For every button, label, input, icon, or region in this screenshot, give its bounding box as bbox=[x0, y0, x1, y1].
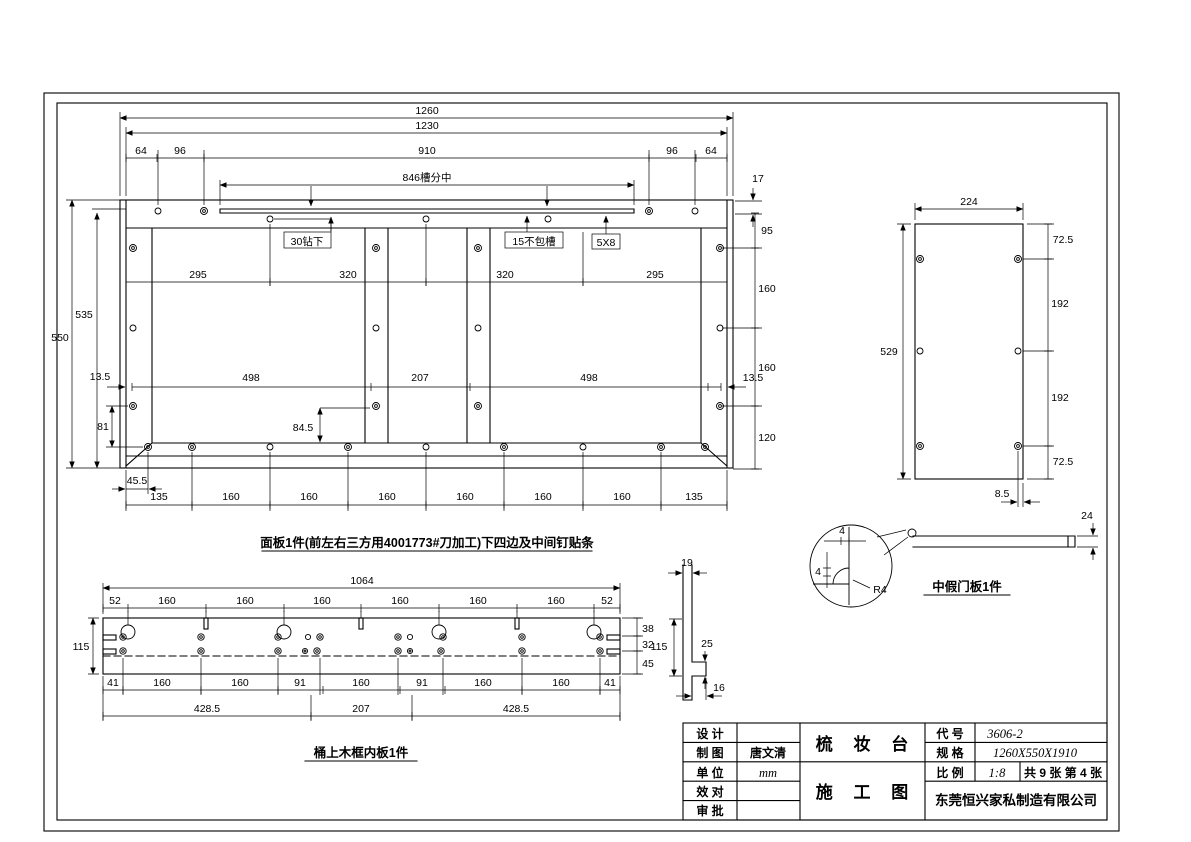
panel-outline bbox=[120, 200, 733, 468]
dim-428-5-left: 428.5 bbox=[194, 703, 220, 715]
dim-160-c3: 160 bbox=[352, 677, 370, 689]
note-30-drill: 30钻下 bbox=[291, 235, 324, 248]
dim-498-right: 498 bbox=[580, 372, 598, 384]
dim-8-5: 8.5 bbox=[995, 488, 1010, 500]
dim-64-right: 64 bbox=[705, 145, 717, 157]
dim-160-t2: 160 bbox=[236, 595, 254, 607]
dim-64-left: 64 bbox=[135, 145, 147, 157]
dim-45-5: 45.5 bbox=[127, 475, 148, 487]
code-value: 3606-2 bbox=[986, 727, 1022, 741]
drawing-sheet: 1260 1230 64 96 910 96 64 846槽分中 17 30钻下… bbox=[0, 0, 1191, 842]
panel-caption: 面板1件(前左右三方用4001773#刀加工)下四边及中间钉贴条 bbox=[260, 535, 594, 550]
dim-96-right: 96 bbox=[666, 145, 678, 157]
dim-115: 115 bbox=[73, 641, 90, 653]
strip-outline bbox=[103, 618, 620, 674]
note-5x8: 5X8 bbox=[597, 237, 616, 249]
dim-535: 535 bbox=[75, 309, 93, 321]
dim-41-left: 41 bbox=[107, 677, 119, 689]
dim-910: 910 bbox=[418, 145, 436, 157]
field-design-label: 设 计 bbox=[696, 726, 723, 741]
dim-95: 95 bbox=[761, 225, 773, 237]
dim-160-t5: 160 bbox=[469, 595, 487, 607]
dim-16: 16 bbox=[713, 682, 725, 694]
dim-160-b2: 160 bbox=[300, 491, 318, 503]
code-label: 代 号 bbox=[935, 726, 963, 741]
product-name: 梳 妆 台 bbox=[816, 734, 916, 754]
panel-dimension-texts: 1260 1230 64 96 910 96 64 846槽分中 17 30钻下… bbox=[51, 105, 776, 551]
dim-192-bottom: 192 bbox=[1051, 392, 1069, 404]
sheet-count: 共 9 张 第 4 张 bbox=[1024, 765, 1103, 780]
doc-type: 施 工 图 bbox=[816, 782, 916, 802]
dim-160-c2: 160 bbox=[231, 677, 249, 689]
strip-profile-view: 19 115 25 16 bbox=[651, 557, 725, 700]
field-approve-label: 审 批 bbox=[696, 803, 723, 818]
dim-115-profile: 115 bbox=[651, 641, 668, 653]
dim-295-right: 295 bbox=[646, 269, 664, 281]
profile-dimension-lines bbox=[668, 573, 722, 700]
dim-498-left: 498 bbox=[242, 372, 260, 384]
field-unit-label: 单 位 bbox=[696, 765, 723, 780]
door-caption: 中假门板1件 bbox=[932, 579, 1002, 594]
dim-160-b3: 160 bbox=[378, 491, 396, 503]
dim-295-left: 295 bbox=[189, 269, 207, 281]
panel-holes bbox=[130, 208, 724, 451]
dim-207: 207 bbox=[411, 372, 429, 384]
door-drawing: 224 529 72.5 192 192 72.5 8.5 24 4 4 R4 … bbox=[810, 196, 1098, 607]
sheet-border bbox=[44, 93, 1119, 831]
dim-192-top: 192 bbox=[1051, 298, 1069, 310]
dim-41-right: 41 bbox=[604, 677, 616, 689]
dim-135-b1: 135 bbox=[150, 491, 168, 503]
dim-207-b: 207 bbox=[352, 703, 370, 715]
dim-72-5-bottom: 72.5 bbox=[1053, 456, 1074, 468]
dim-84-5: 84.5 bbox=[293, 422, 314, 434]
dim-72-5-top: 72.5 bbox=[1053, 234, 1074, 246]
dim-4-horizontal: 4 bbox=[839, 525, 845, 537]
field-draft-label: 制 图 bbox=[696, 745, 723, 760]
dim-160-c4: 160 bbox=[474, 677, 492, 689]
cad-canvas: 1260 1230 64 96 910 96 64 846槽分中 17 30钻下… bbox=[0, 0, 1191, 842]
door-holes bbox=[917, 256, 1022, 450]
dim-17: 17 bbox=[752, 173, 764, 185]
dim-1064: 1064 bbox=[350, 575, 374, 587]
title-block: 设 计 制 图 唐文清 单 位 mm 效 对 审 批 梳 妆 台 施 工 图 代… bbox=[683, 723, 1107, 820]
field-draft-value: 唐文清 bbox=[750, 745, 786, 760]
dim-91-left: 91 bbox=[294, 677, 306, 689]
company-name: 东莞恒兴家私制造有限公司 bbox=[935, 792, 1097, 808]
dim-r4: R4 bbox=[873, 584, 887, 596]
dim-160-t6: 160 bbox=[547, 595, 565, 607]
dim-160-t1: 160 bbox=[158, 595, 176, 607]
dim-320-right: 320 bbox=[496, 269, 514, 281]
profile-outline bbox=[683, 565, 706, 700]
dim-160-b5: 160 bbox=[534, 491, 552, 503]
dim-13-5-left: 13.5 bbox=[90, 371, 111, 383]
dim-160-b6: 160 bbox=[613, 491, 631, 503]
dim-550: 550 bbox=[51, 332, 69, 344]
field-unit-value: mm bbox=[759, 766, 777, 780]
scale-label: 比 例 bbox=[936, 765, 963, 780]
dim-160-t4: 160 bbox=[391, 595, 409, 607]
field-check-label: 效 对 bbox=[696, 784, 723, 799]
dim-25: 25 bbox=[701, 638, 713, 650]
dim-160-c1: 160 bbox=[153, 677, 171, 689]
dim-224: 224 bbox=[960, 196, 978, 208]
door-dimension-lines bbox=[903, 209, 1093, 560]
door-outline bbox=[915, 224, 1023, 479]
dim-24: 24 bbox=[1081, 510, 1093, 522]
dim-160-r1: 160 bbox=[758, 283, 776, 295]
panel-drawing: 1260 1230 64 96 910 96 64 846槽分中 17 30钻下… bbox=[51, 105, 776, 551]
spec-value: 1260X550X1910 bbox=[993, 746, 1078, 760]
sheet-border-outer bbox=[44, 93, 1119, 831]
dim-38: 38 bbox=[642, 623, 654, 635]
scale-value: 1:8 bbox=[989, 766, 1006, 780]
dim-846-groove: 846槽分中 bbox=[402, 171, 451, 184]
dim-320-left: 320 bbox=[339, 269, 357, 281]
dim-428-5-right: 428.5 bbox=[503, 703, 529, 715]
dim-1230: 1230 bbox=[415, 120, 439, 132]
strip-caption: 桶上木框内板1件 bbox=[313, 745, 409, 760]
dim-96-left: 96 bbox=[174, 145, 186, 157]
dim-19: 19 bbox=[681, 557, 693, 569]
dim-135-b2: 135 bbox=[685, 491, 703, 503]
strip-dimension-lines bbox=[93, 588, 641, 720]
dim-1260: 1260 bbox=[415, 105, 439, 117]
dim-160-t3: 160 bbox=[313, 595, 331, 607]
dim-160-c5: 160 bbox=[552, 677, 570, 689]
strip-drawing: 1064 52 160 160 160 160 160 160 52 115 3… bbox=[73, 557, 725, 761]
dim-120: 120 bbox=[758, 432, 776, 444]
dim-160-r2: 160 bbox=[758, 362, 776, 374]
dim-52-left: 52 bbox=[109, 595, 121, 607]
spec-label: 规 格 bbox=[936, 745, 964, 760]
dim-52-right: 52 bbox=[601, 595, 613, 607]
dim-45: 45 bbox=[642, 658, 654, 670]
dim-529: 529 bbox=[880, 346, 898, 358]
strip-dimension-texts: 1064 52 160 160 160 160 160 160 52 115 3… bbox=[73, 575, 654, 761]
dim-81: 81 bbox=[97, 421, 109, 433]
dim-160-b4: 160 bbox=[456, 491, 474, 503]
note-15-groove: 15不包槽 bbox=[512, 235, 556, 248]
dim-4-vertical: 4 bbox=[815, 566, 821, 578]
dim-91-right: 91 bbox=[416, 677, 428, 689]
dim-160-b1: 160 bbox=[222, 491, 240, 503]
